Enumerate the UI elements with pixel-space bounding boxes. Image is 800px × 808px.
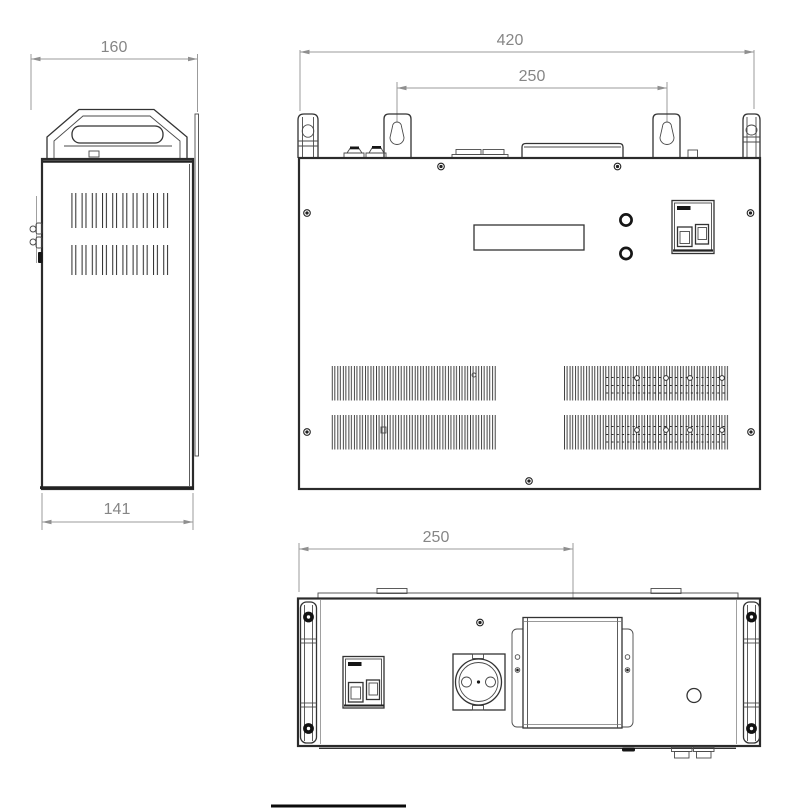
screw-icon <box>747 210 754 217</box>
arrowhead-right <box>184 520 194 525</box>
screw-icon <box>748 429 755 436</box>
clip-icon <box>30 239 36 245</box>
screw-icon <box>614 163 621 170</box>
dimension-label-420: 420 <box>497 32 524 49</box>
bottom-view: 250 <box>298 529 760 758</box>
top-connector-block <box>452 150 508 159</box>
socket-center-pin <box>477 680 480 683</box>
arrowhead-right <box>188 57 198 62</box>
arrowhead-left <box>299 547 309 552</box>
arrowhead-left <box>397 86 407 91</box>
clip-icon <box>30 226 36 232</box>
top-cover-strip <box>522 144 623 159</box>
vent-grille-bottom-left <box>331 415 497 450</box>
top-small-tab <box>688 150 698 158</box>
arrowhead-left <box>42 520 52 525</box>
keyhole-slot <box>390 122 404 145</box>
scan-artifact <box>271 805 406 808</box>
side-view: 160 <box>30 39 199 530</box>
dimension-side-depth: 141 <box>42 493 193 530</box>
front-view: 420 250 <box>298 32 760 489</box>
vent-grille-top-left <box>331 366 497 401</box>
lid-edge <box>318 589 738 599</box>
dimension-label-160: 160 <box>101 39 128 56</box>
breaker-label <box>348 662 362 666</box>
dimension-side-width: 160 <box>31 39 198 112</box>
breaker-label <box>677 206 691 210</box>
drawing-canvas: 160 <box>0 0 800 808</box>
hinge-block <box>38 252 43 263</box>
keyhole-slot <box>660 122 674 145</box>
foot-pad <box>622 748 635 752</box>
terminal-cover <box>512 618 633 729</box>
handle-notch <box>89 151 99 157</box>
mount-bracket-left <box>298 114 318 158</box>
arrowhead-left <box>31 57 41 62</box>
top-terminals <box>344 146 386 158</box>
screw-icon <box>526 478 533 485</box>
screw-icon <box>477 619 484 626</box>
screw-icon <box>304 210 311 217</box>
arrowhead-right <box>658 86 668 91</box>
indicator-button-top <box>620 214 631 225</box>
mount-bracket-right <box>743 114 760 158</box>
dimension-label-141: 141 <box>104 501 131 518</box>
screw-icon <box>438 163 445 170</box>
bracket-hole <box>746 125 757 135</box>
vent-slot-row-bottom <box>70 245 172 275</box>
carry-handle <box>47 110 187 159</box>
vent-grille-top-right <box>563 366 729 401</box>
side-clips <box>30 196 43 263</box>
dimension-label-250-bottom: 250 <box>423 529 450 546</box>
mount-plate-edge <box>195 114 199 456</box>
dimension-label-250-front: 250 <box>519 68 546 85</box>
arrowhead-left <box>300 50 310 55</box>
arrowhead-right <box>745 50 755 55</box>
screw-icon <box>304 429 311 436</box>
arrowhead-right <box>564 547 574 552</box>
technical-drawing: 160 <box>0 0 800 808</box>
handle-grip <box>72 126 163 143</box>
bracket-hole <box>302 125 314 137</box>
indicator-button-bottom <box>620 248 631 259</box>
dimension-front-mount-spacing: 250 <box>397 68 667 122</box>
vent-grille-bottom-right <box>563 415 729 450</box>
vent-slot-row-top <box>70 193 172 228</box>
